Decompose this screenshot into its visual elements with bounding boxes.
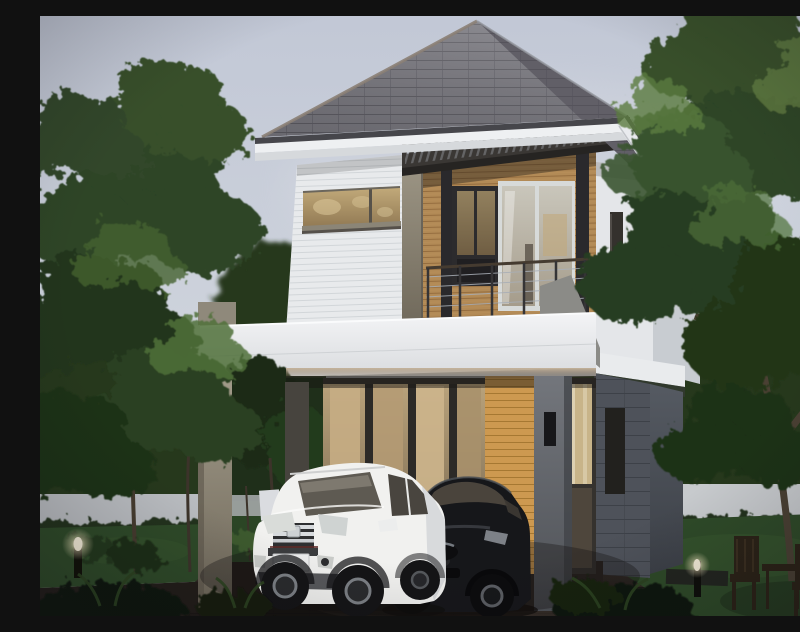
- house-rendering: [40, 16, 800, 616]
- vignette: [40, 16, 800, 616]
